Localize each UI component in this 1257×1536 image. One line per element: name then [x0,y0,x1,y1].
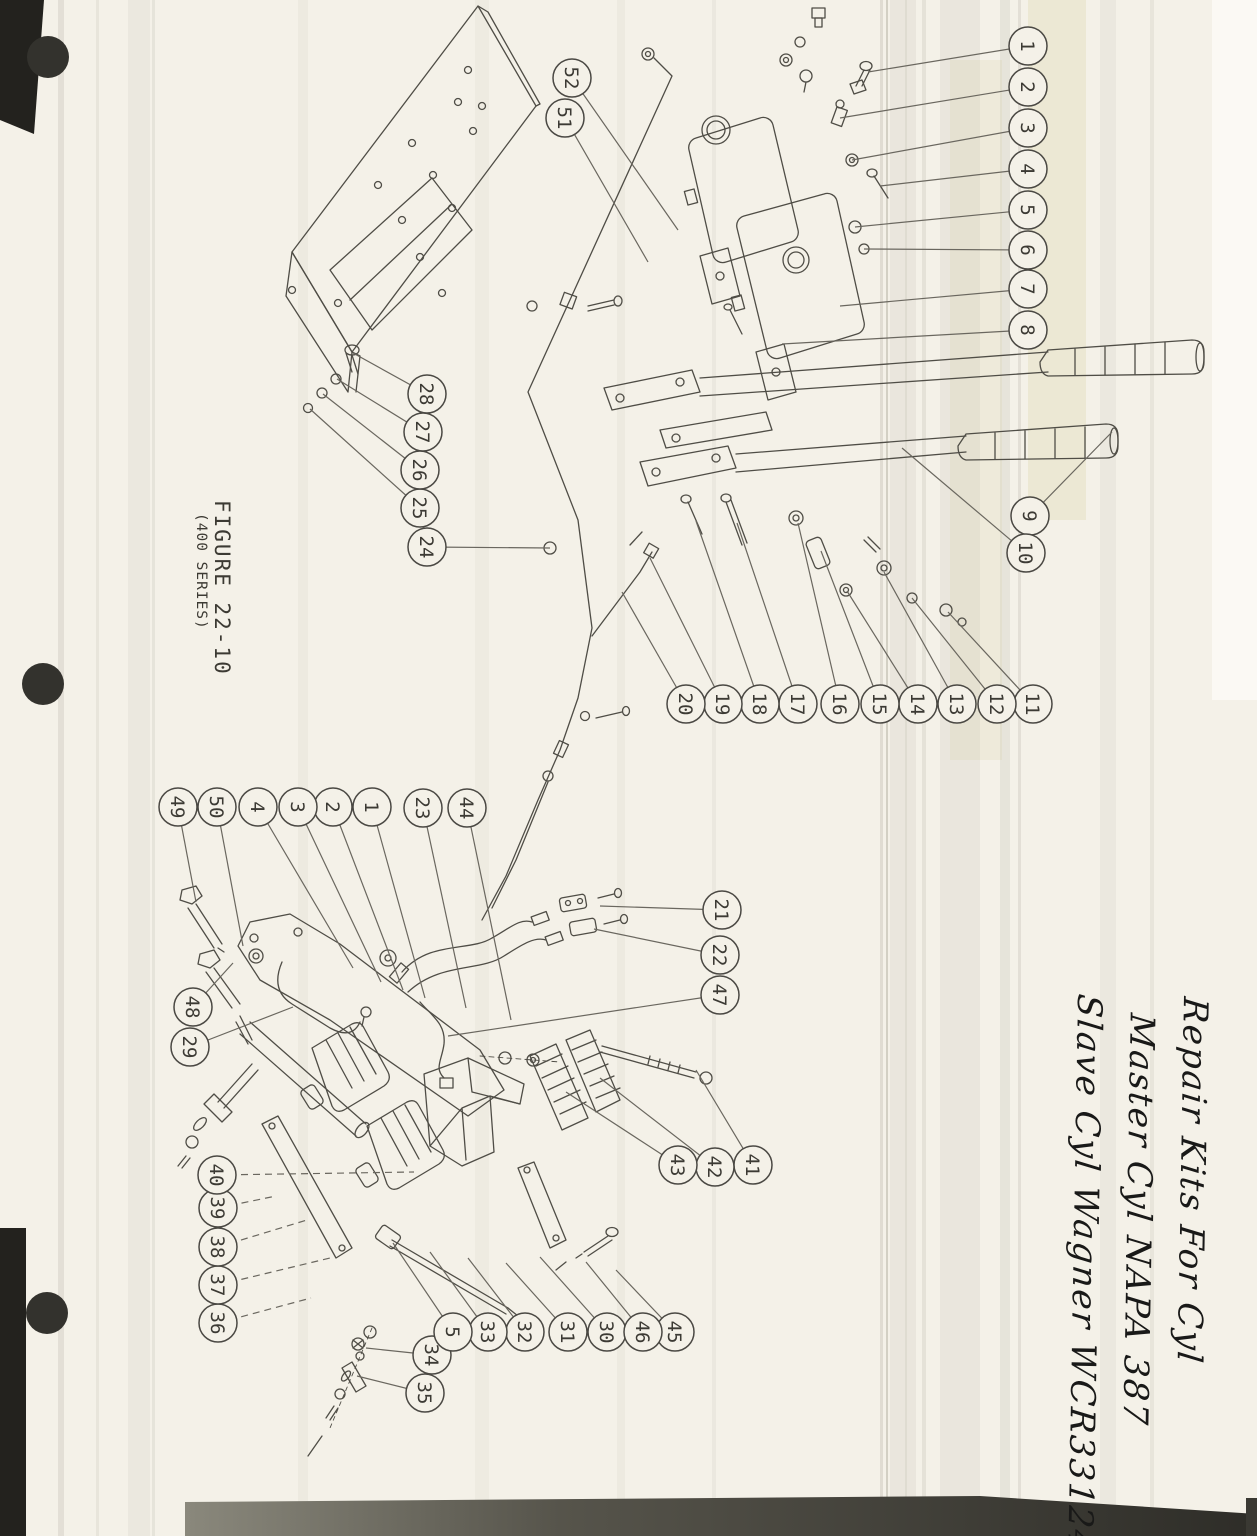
callout-number: 11 [1021,693,1043,716]
edge-shadow [0,1228,26,1536]
callout-number: 50 [205,796,227,819]
callout-4: 4 [1009,150,1047,188]
callout-9: 9 [1011,497,1049,535]
callout-1: 1 [1009,27,1047,65]
callout-number: 13 [945,693,967,716]
callout-20: 20 [667,685,705,723]
callout-number: 45 [663,1321,685,1344]
callout-6: 6 [1009,231,1047,269]
callout-29: 29 [171,1028,209,1066]
callout-number: 21 [710,899,732,922]
callout-16: 16 [821,685,859,723]
hole-punch [27,36,69,78]
callout-51: 51 [546,99,584,137]
callout-35: 35 [406,1374,444,1412]
pedal-bracket-assembly [178,886,712,1456]
callout-41: 41 [734,1146,772,1184]
callout-number: 43 [666,1154,688,1177]
handwritten-line: Master Cyl NAPA 387 [1105,989,1168,1536]
callout-15: 15 [861,685,899,723]
callout-number: 40 [205,1164,227,1187]
figure-caption: FIGURE 22-10 (400 SERIES) [191,500,233,676]
handwritten-line: Slave Cyl Wagner WCR33124 [1052,983,1115,1536]
callout-number: 38 [206,1236,228,1259]
callout-13: 13 [938,685,976,723]
callout-number: 41 [741,1154,763,1177]
callout-42: 42 [696,1148,734,1186]
callout-number: 35 [413,1382,435,1405]
callout-number: 51 [553,107,575,130]
callout-number: 3 [286,801,308,812]
callout-33: 33 [469,1313,507,1351]
callout-number: 14 [906,693,928,716]
callout-number: 2 [321,801,343,812]
callout-22: 22 [701,936,739,974]
callout-number: 4 [246,801,268,812]
callout-number: 1 [360,801,382,812]
callout-number: 20 [674,693,696,716]
callout-17: 17 [779,685,817,723]
callout-number: 52 [560,67,582,90]
callout-number: 1 [1016,40,1038,51]
callout-number: 3 [1016,122,1038,133]
callout-number: 29 [178,1036,200,1059]
callout-number: 37 [206,1274,228,1297]
callout-number: 17 [786,693,808,716]
callout-number: 49 [166,796,188,819]
callout-52: 52 [553,59,591,97]
leader-line [298,807,381,982]
callout-24: 24 [408,528,446,566]
callout-44: 44 [448,789,486,827]
callout-8: 8 [1009,311,1047,349]
callout-38: 38 [199,1228,237,1266]
callout-number: 34 [420,1344,442,1367]
callout-number: 28 [415,383,437,406]
callout-number: 19 [711,693,733,716]
callout-5: 5 [1009,191,1047,229]
callout-number: 47 [708,984,730,1007]
callout-number: 5 [441,1326,463,1337]
callout-10: 10 [1007,534,1045,572]
callout-2: 2 [1009,68,1047,106]
callout-number: 26 [408,459,430,482]
callout-number: 25 [408,497,430,520]
callout-number: 6 [1016,244,1038,255]
callout-12: 12 [978,685,1016,723]
leader-line [372,807,425,998]
hole-punch [22,663,64,705]
callout-49: 49 [159,788,197,826]
callout-number: 36 [206,1312,228,1335]
callout-number: 18 [748,693,770,716]
callout-number: 7 [1016,283,1038,294]
scanned-manual-page: 1234567891011121314151617181920212223242… [0,0,1257,1536]
leader-line [217,1172,414,1175]
callout-40: 40 [198,1156,236,1194]
callout-46: 46 [624,1313,662,1351]
callout-number: 48 [181,996,203,1019]
callout-number: 42 [703,1156,725,1179]
callout-36: 36 [199,1304,237,1342]
callout-26: 26 [401,451,439,489]
callout-14: 14 [899,685,937,723]
callout-11: 11 [1014,685,1052,723]
callout-30: 30 [588,1313,626,1351]
callout-19: 19 [704,685,742,723]
callout-number: 4 [1016,163,1038,174]
callout-number: 27 [411,421,433,444]
handwritten-line: Repair Kits For Cyl [1158,994,1221,1536]
callout-number: 31 [556,1321,578,1344]
corner-band [1246,1498,1257,1536]
leader-line [696,521,760,704]
callout-number: 12 [985,693,1007,716]
callout-31: 31 [549,1313,587,1351]
leader-line [565,118,648,262]
callout-number: 10 [1014,542,1036,565]
callout-27: 27 [404,413,442,451]
callout-37: 37 [199,1266,237,1304]
callout-50: 50 [198,788,236,826]
leader-line [737,523,798,704]
callout-43: 43 [659,1146,697,1184]
callout-number: 39 [206,1197,228,1220]
callout-48: 48 [174,988,212,1026]
brake-line [482,48,672,920]
callout-number: 22 [708,944,730,967]
callout-number: 44 [455,797,477,820]
callout-5: 5 [434,1313,472,1351]
handwritten-note: Repair Kits For Cyl Master Cyl NAPA 387 … [1052,983,1221,1536]
callout-number: 46 [631,1321,653,1344]
callout-number: 2 [1016,81,1038,92]
callout-number: 32 [513,1321,535,1344]
figure-subtitle: (400 SERIES) [191,500,211,676]
leader-line [333,807,403,990]
callout-25: 25 [401,489,439,527]
hole-punch [26,1292,68,1334]
leader-line [310,409,420,508]
figure-title: FIGURE 22-10 [211,500,233,676]
callout-number: 16 [828,693,850,716]
callout-number: 15 [868,693,890,716]
callout-7: 7 [1009,270,1047,308]
callout-number: 9 [1018,510,1040,521]
callout-circles: 1234567891011121314151617181920212223242… [159,27,1052,1412]
callout-23: 23 [404,789,442,827]
callout-number: 8 [1016,324,1038,335]
callout-4: 4 [239,788,277,826]
leader-line [798,523,840,704]
callout-number: 5 [1016,204,1038,215]
callout-28: 28 [408,375,446,413]
mounting-plate [286,6,540,413]
callout-1: 1 [353,788,391,826]
leader-line [821,551,880,704]
callout-number: 24 [415,536,437,559]
callout-21: 21 [703,891,741,929]
callout-18: 18 [741,685,779,723]
leader-line [217,807,243,946]
callout-3: 3 [1009,109,1047,147]
callout-number: 30 [595,1321,617,1344]
callout-number: 33 [476,1321,498,1344]
callout-3: 3 [279,788,317,826]
callout-32: 32 [506,1313,544,1351]
callout-47: 47 [701,976,739,1014]
callout-2: 2 [314,788,352,826]
callout-number: 23 [411,797,433,820]
